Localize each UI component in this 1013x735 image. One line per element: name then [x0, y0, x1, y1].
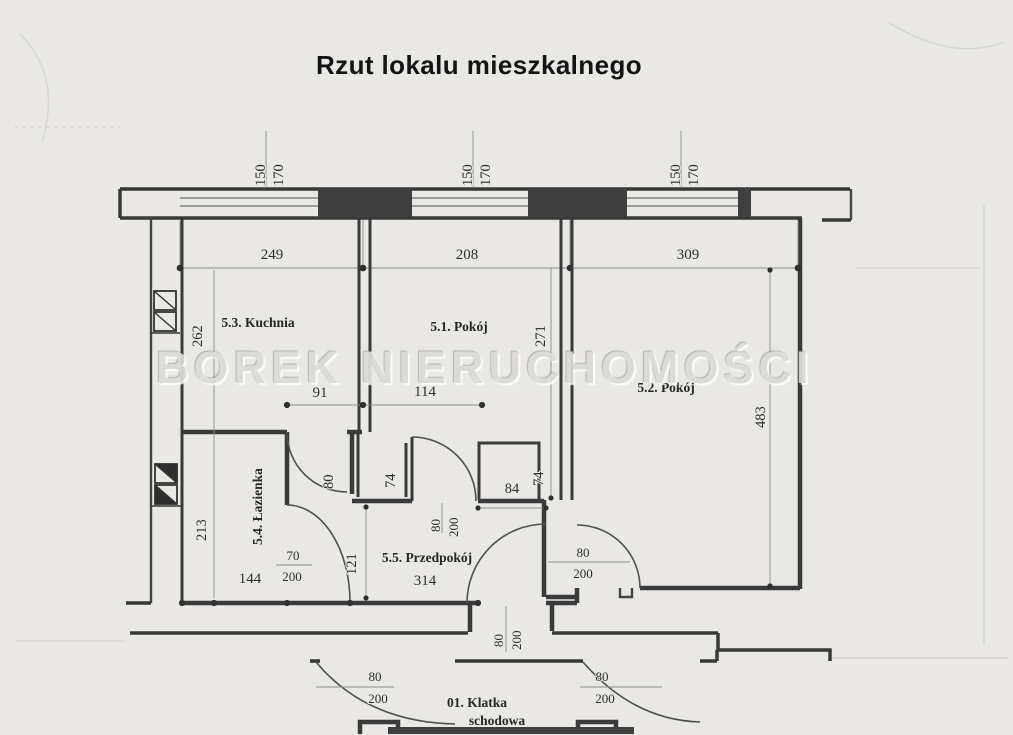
label-room1: 5.1. Pokój — [430, 319, 487, 334]
interior-walls — [182, 218, 800, 632]
dim-entry-door-w: 80 — [491, 634, 506, 647]
window-1-callout: 150 170 — [253, 131, 287, 188]
label-staircase-1: 01. Klatka — [447, 695, 507, 710]
dim-stair-left-h: 200 — [368, 691, 388, 706]
watermark: BOREK NIERUCHOMOŚCI — [156, 342, 866, 394]
stair-edge — [388, 727, 634, 734]
dim-stair-right-h: 200 — [595, 691, 615, 706]
room2-door: 84 74 80 200 — [475, 471, 640, 588]
dim-window2-height: 170 — [478, 164, 494, 186]
stair-door-left: 80 200 — [316, 662, 455, 734]
bathroom-door: 70 200 — [276, 505, 350, 602]
dim-entry-door-h: 200 — [509, 631, 524, 651]
dim-bath-width: 144 — [239, 571, 262, 587]
window-3-callout: 150 170 — [668, 131, 702, 188]
dim-bath-depth: 213 — [194, 519, 210, 541]
wall-pier — [318, 189, 412, 217]
dim-window3-width: 150 — [668, 164, 684, 186]
dim-row-top: 249 208 309 — [177, 220, 802, 271]
dim-room2-door-w: 80 — [577, 545, 590, 560]
label-staircase-2: schodowa — [469, 713, 526, 728]
dim-stair-left-w: 80 — [369, 669, 382, 684]
wall-pier — [738, 189, 751, 217]
entry-door: 80 200 — [467, 524, 546, 652]
label-kitchen: 5.3. Kuchnia — [221, 315, 294, 330]
dim-room1-door-h: 200 — [446, 518, 461, 538]
room1-door: 74 80 200 — [383, 437, 476, 537]
stair-door-right: 80 200 — [578, 662, 700, 734]
dim-bath-door-w: 70 — [287, 548, 300, 563]
exterior-walls — [120, 189, 851, 603]
dim-pier-right-b: 74 — [531, 471, 547, 486]
dim-stair-right-w: 80 — [596, 669, 609, 684]
dim-window1-height: 170 — [271, 164, 287, 186]
dim-bath-door-h: 200 — [282, 569, 302, 584]
vent-shaft-kitchen — [150, 291, 180, 333]
doors: 80 74 80 200 84 74 80 200 — [276, 432, 640, 652]
dim-pier-left: 74 — [383, 473, 399, 488]
dim-room2-depth: 483 — [753, 406, 769, 428]
floor-plan-page: 150 170 150 170 150 170 — [0, 0, 1013, 735]
dim-room2-door-h: 200 — [573, 566, 593, 581]
dim-hall-depth: 121 — [344, 553, 360, 575]
dim-window1-width: 150 — [253, 164, 269, 186]
label-bathroom: 5.4. Łazienka — [250, 468, 265, 545]
wall-pier — [528, 189, 627, 217]
scan-artifacts — [15, 22, 1008, 658]
dim-hall-length: 314 — [414, 573, 437, 589]
vent-shaft-bathroom — [150, 464, 182, 506]
dim-window2-width: 150 — [460, 164, 476, 186]
dim-span-kitchen: 249 — [261, 247, 284, 263]
windows: 150 170 150 170 150 170 — [180, 131, 751, 217]
kitchen-door: 80 — [287, 432, 352, 494]
dim-window3-height: 170 — [686, 164, 702, 186]
dim-span-room2: 309 — [677, 247, 700, 263]
vent-shafts — [150, 291, 182, 506]
dim-room1-door-w: 80 — [428, 519, 443, 532]
dim-span-room1: 208 — [456, 247, 479, 263]
window-2-callout: 150 170 — [460, 131, 494, 188]
label-hall: 5.5. Przedpokój — [382, 550, 472, 565]
dim-pier-right-a: 84 — [505, 481, 520, 497]
dim-kitchen-door: 80 — [321, 475, 337, 490]
page-title: Rzut lokalu mieszkalnego — [316, 50, 642, 81]
